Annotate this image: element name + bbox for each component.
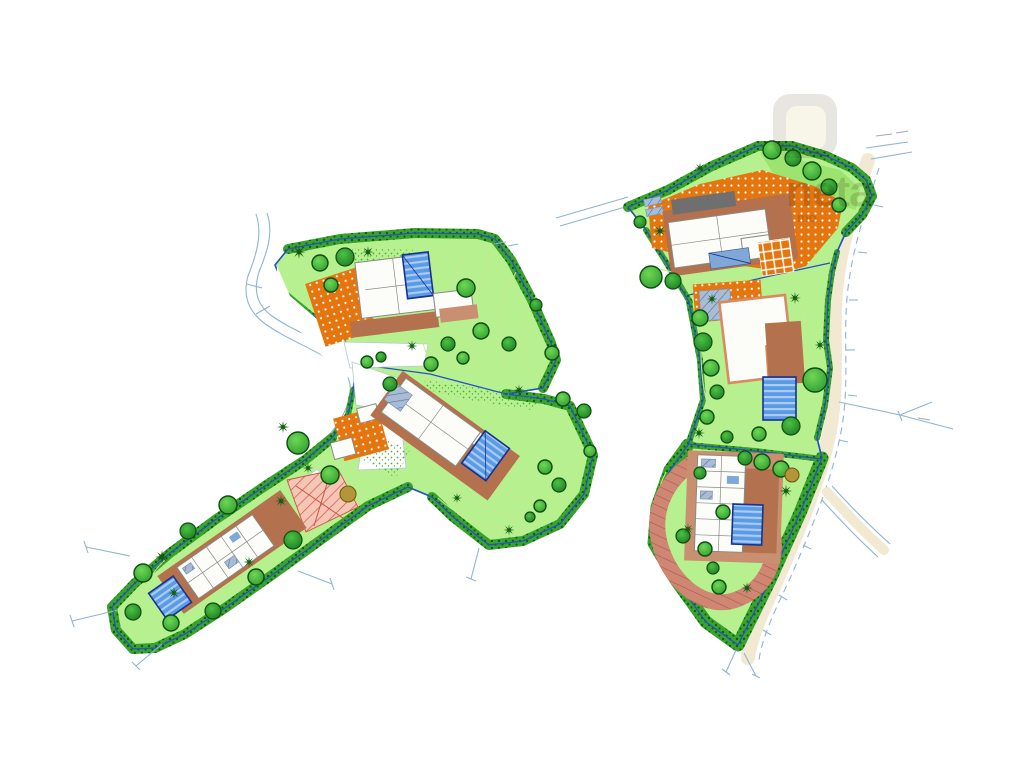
east-road-fork (827, 492, 884, 550)
tree-icon (665, 273, 681, 289)
tree-icon (545, 346, 559, 360)
room-fixture (727, 476, 739, 484)
shrub-icon (302, 462, 313, 473)
tree-icon (754, 454, 770, 470)
tree-icon (692, 310, 708, 326)
shrub-icon (706, 293, 717, 304)
tree-icon (700, 410, 714, 424)
tree-icon (284, 531, 302, 549)
tree-icon (707, 562, 719, 574)
shrub-icon (362, 246, 374, 258)
tree-icon (721, 431, 733, 443)
tree-icon (703, 360, 719, 376)
tree-icon (457, 279, 475, 297)
shrub-icon (682, 523, 693, 534)
tree-icon (584, 445, 596, 457)
tree-icon (556, 392, 570, 406)
shrub-icon (654, 225, 667, 238)
south-villa-pool (732, 504, 763, 545)
shrub-icon (168, 587, 180, 599)
tree-icon (502, 337, 516, 351)
tree-icon (205, 603, 221, 619)
east-branch-line (839, 402, 953, 429)
tree-icon (457, 352, 469, 364)
tree-icon (376, 352, 386, 362)
watermark-text: neta (786, 167, 874, 216)
tree-icon (321, 466, 339, 484)
middle-villa-wing (765, 321, 805, 385)
tree-icon (361, 356, 373, 368)
tree-icon (383, 377, 397, 391)
tree-icon (752, 427, 766, 441)
shrub-icon (406, 340, 417, 351)
tree-icon (180, 523, 196, 539)
tree-icon (694, 333, 712, 351)
tree-icon (441, 337, 455, 351)
shrub-icon (275, 495, 287, 507)
watermark-subtext: mo (797, 210, 817, 225)
tree-icon (634, 216, 646, 228)
north-villa-pergola (758, 238, 794, 276)
room-fixture (701, 459, 715, 467)
shrub-icon (693, 427, 705, 439)
shrub-icon (789, 292, 801, 304)
tree-icon (530, 299, 542, 311)
north-exit-line (866, 142, 908, 148)
shrub-icon (513, 384, 524, 395)
tree-icon (336, 248, 354, 266)
shrub-icon (503, 524, 514, 535)
watermark-logo-hole (786, 106, 826, 150)
site-plan-drawing: neta mo (0, 0, 1024, 768)
tree-icon (134, 564, 152, 582)
shrub-icon (694, 162, 705, 173)
tree-icon (525, 512, 535, 522)
east-branch-spur (900, 402, 932, 415)
north-exit-line2 (871, 152, 912, 159)
tree-icon (340, 486, 356, 502)
tree-icon (577, 404, 591, 418)
tree-icon (716, 505, 730, 519)
room-fixture (700, 491, 712, 499)
tree-icon (698, 542, 712, 556)
left-estate (112, 233, 596, 649)
tree-icon (473, 323, 489, 339)
tree-icon (738, 451, 752, 465)
tree-icon (163, 615, 179, 631)
shrub-icon (814, 339, 825, 350)
tree-icon (312, 255, 328, 271)
tree-icon (710, 385, 724, 399)
tree-icon (782, 417, 800, 435)
tree-icon (538, 460, 552, 474)
right-estate-entry-line (556, 197, 628, 218)
shrub-icon (452, 493, 463, 504)
tree-icon (785, 468, 799, 482)
middle-villa-pool (763, 377, 796, 420)
tree-icon (694, 467, 706, 479)
tree-icon (125, 604, 141, 620)
tree-icon (287, 432, 309, 454)
fork-edge (832, 486, 890, 544)
tree-icon (552, 478, 566, 492)
tree-icon (803, 368, 827, 392)
fork-edge2 (822, 500, 878, 557)
shrub-icon (741, 582, 753, 594)
tree-icon (712, 580, 726, 594)
shrub-icon (243, 556, 254, 567)
shrub-icon (292, 245, 306, 259)
shrub-icon (780, 485, 793, 498)
site-plan-canvas: neta mo (0, 0, 1024, 768)
right-estate-entry-line2 (560, 205, 632, 226)
tree-icon (219, 496, 237, 514)
tree-icon (324, 278, 338, 292)
shrub-icon (155, 550, 169, 564)
road-label-marks (876, 131, 930, 420)
shrub-icon (277, 421, 290, 434)
tree-icon (640, 266, 662, 288)
tree-icon (248, 569, 264, 585)
tree-icon (424, 357, 438, 371)
tree-icon (534, 500, 546, 512)
